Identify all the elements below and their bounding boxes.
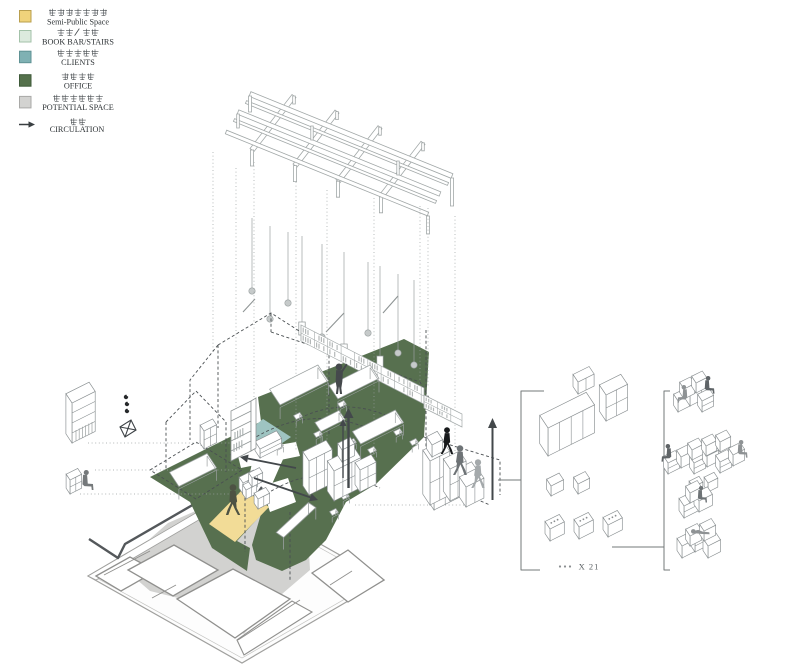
svg-text:POTENTIAL SPACE: POTENTIAL SPACE bbox=[42, 103, 114, 112]
svg-text:OFFICE: OFFICE bbox=[64, 82, 92, 91]
svg-text:CLIENTS: CLIENTS bbox=[61, 58, 95, 67]
svg-text:Semi-Public Space: Semi-Public Space bbox=[47, 17, 109, 26]
svg-text:BOOK BAR/STAIRS: BOOK BAR/STAIRS bbox=[42, 37, 114, 46]
svg-text:X 21: X 21 bbox=[579, 562, 600, 572]
svg-text:CIRCULATION: CIRCULATION bbox=[50, 125, 105, 134]
